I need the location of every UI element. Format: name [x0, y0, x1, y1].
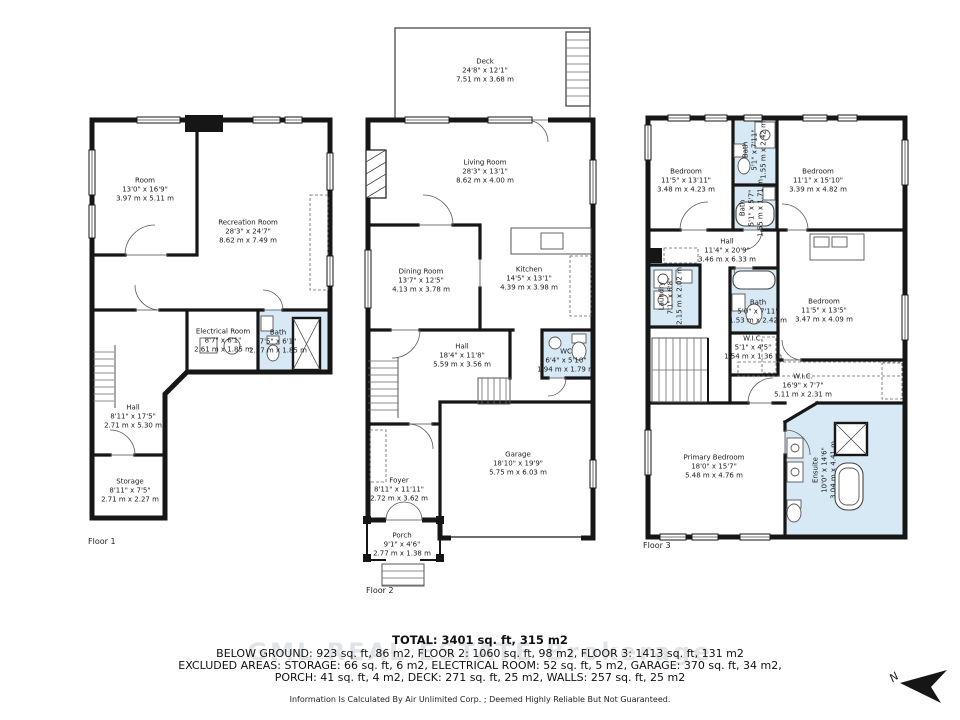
- floor-2-caption: Floor 2: [366, 586, 394, 595]
- room-label-f3-bedroom-1: Bedroom11'5" x 13'11"3.48 m x 4.23 m: [657, 167, 715, 194]
- kitchen-cabinets: [570, 256, 591, 316]
- built-in-shelf: [310, 195, 328, 290]
- room-label-f1-recreation: Recreation Room28'3" x 24'7"8.62 m x 7.4…: [218, 218, 278, 245]
- room-label-f2-porch: Porch9'1" x 4'6"2.77 m x 1.38 m: [373, 531, 431, 558]
- floor-2-plan: [358, 20, 638, 620]
- floor-3-caption: Floor 3: [643, 541, 671, 550]
- closet: [664, 248, 698, 263]
- room-label-f3-bedroom-3: Bedroom11'5" x 13'5"3.47 m x 4.09 m: [795, 297, 853, 324]
- room-label-f3-hall: Hall11'4" x 20'9"3.46 m x 6.33 m: [698, 237, 756, 264]
- floor-1-caption: Floor 1: [88, 537, 116, 546]
- room-label-f2-living: Living Room28'3" x 13'1"8.62 m x 4.00 m: [456, 158, 514, 185]
- floorplan-page: { "colors": {"wall": "#161616", "bath_fi…: [0, 0, 960, 720]
- room-label-f2-foyer: Foyer8'11" x 11'11"2.72 m x 3.62 m: [370, 476, 428, 503]
- chimney-block: [185, 115, 223, 132]
- room-label-f1-bath: Bath7'5" x 6'1"2.27 m x 1.85 m: [249, 328, 307, 355]
- room-label-f2-dining: Dining Room13'7" x 12'5"4.13 m x 3.78 m: [392, 267, 450, 294]
- fireplace: [366, 150, 386, 198]
- room-label-f1-electrical: Electrical Room8'7" x 6'1"2.61 m x 1.85 …: [194, 327, 252, 354]
- room-label-f2-hall: Hall18'4" x 11'8"5.59 m x 3.56 m: [433, 342, 491, 369]
- room-label-f3-bath-2: Bath5'1" x 5'7"1.55 m x 1.71 m: [738, 179, 765, 237]
- room-label-f2-deck: Deck24'8" x 12'1"7.51 m x 3.68 m: [456, 57, 514, 84]
- ensuite-fixtures: [787, 438, 803, 522]
- room-label-f2-kitchen: Kitchen14'5" x 13'1"4.39 m x 3.98 m: [500, 265, 558, 292]
- deck-stairs: [566, 32, 590, 106]
- room-label-f3-laundry: Laundry7'1" x 6'8"2.15 m x 2.02 m: [657, 267, 684, 325]
- room-label-f3-wic-small: W.I.C.5'1" x 4'5"1.54 m x 1.36 m: [724, 334, 782, 361]
- room-label-f1-hall: Hall8'11" x 17'5"2.71 m x 5.30 m: [104, 403, 162, 430]
- stairs-floor1: [93, 352, 114, 401]
- room-label-f1-room: Room13'0" x 16'9"3.97 m x 5.11 m: [116, 176, 174, 203]
- foyer-closet: [370, 430, 386, 482]
- room-label-f3-bath-1: Bath5'1" x 7'11"1.55 m x 2.42 m: [741, 121, 768, 179]
- room-label-f3-ensuite: Ensuite10'0" x 14'6"3.04 m x 4.41 m: [811, 441, 838, 499]
- summary-total: TOTAL: 3401 sq. ft, 315 m2: [0, 633, 960, 647]
- stairs-down: [368, 361, 398, 410]
- room-label-f2-wc: WC6'4" x 5'10"1.94 m x 1.79 m: [537, 347, 595, 374]
- room-label-f3-primary: Primary Bedroom18'0" x 15'7"5.48 m x 4.7…: [684, 453, 745, 480]
- room-label-f3-wic-large: W.I.C.16'9" x 7'7"5.11 m x 2.31 m: [774, 372, 832, 399]
- kitchen-sink: [541, 233, 563, 249]
- room-label-f1-storage: Storage8'11" x 7'5"2.71 m x 2.27 m: [101, 477, 159, 504]
- summary-disclaimer: Information Is Calculated By Air Unlimit…: [0, 695, 960, 704]
- room-label-f3-bedroom-2: Bedroom11'1" x 15'10"3.39 m x 4.82 m: [789, 167, 847, 194]
- bed: [810, 234, 864, 260]
- summary-excluded-2: PORCH: 41 sq. ft, 4 m2, DECK: 271 sq. ft…: [0, 671, 960, 684]
- room-label-f2-garage: Garage18'10" x 19'9"5.75 m x 6.03 m: [489, 450, 547, 477]
- room-label-f3-bath-3: Bath5'0" x 7'11"1.53 m x 2.42 m: [729, 298, 787, 325]
